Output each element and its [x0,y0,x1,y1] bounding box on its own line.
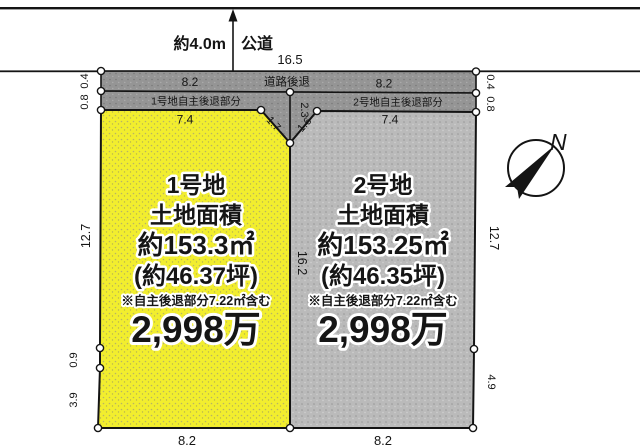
left-edge-dim-04: 0.4 [79,73,91,88]
notch-depth-dim: 2.3 [298,102,310,117]
setback-width-left-dim: 8.2 [182,75,199,89]
center-boundary-dim: 16.2 [295,251,309,275]
plot2-price: 2,998万 [318,309,448,350]
diagram-canvas: 約4.0m 公道 16.5 8.2 道路後退 8.2 1号地自主後退部分 2号地… [0,0,640,447]
plot2-top-width-dim: 7.4 [382,113,399,127]
plot1-area-sqm: 約153.3㎡ [137,230,254,260]
plot1-setback-strip-label: 1号地自主後退部分 [151,95,241,108]
plot1-price: 2,998万 [131,309,261,350]
plot1-name: 1号地 [167,172,226,198]
plot2-right-height-dim: 12.7 [487,226,501,250]
right-edge-dim-08: 0.8 [484,96,496,111]
plot2-setback-strip-label: 2号地自主後退部分 [353,96,443,109]
plot2-bottom-width-dim: 8.2 [374,433,392,447]
road-far-edge-line [0,7,640,9]
plot1-top-width-dim: 7.4 [177,113,194,127]
plot1-area-heading: 土地面積 [150,202,243,228]
compass-north-label: N [550,129,567,155]
road-width-label: 約4.0m [174,34,226,53]
setback-width-right-dim: 8.2 [376,77,393,91]
left-edge-dim-08: 0.8 [79,94,91,109]
plot1-left-height-dim: 12.7 [79,224,93,248]
plot2-name: 2号地 [354,172,413,198]
plot1-setback-note: ※自主後退部分7.22㎡含む [121,293,270,308]
frontage-dim: 16.5 [277,52,302,67]
plot2-area-heading: 土地面積 [337,202,430,228]
plot1-area-tsubo: (約46.37坪) [134,262,258,290]
plot1-left-seg2-dim: 3.9 [68,392,80,407]
plot2-setback-note: ※自主後退部分7.22㎡含む [308,293,457,308]
plot2-area-sqm: 約153.25㎡ [317,230,449,260]
plot1-left-seg1-dim: 0.9 [68,352,80,367]
arrow-up-icon [229,9,238,22]
plot1-bottom-width-dim: 8.2 [178,433,196,447]
road-setback-label: 道路後退 [264,75,310,89]
road-name-label: 公道 [241,34,273,53]
plot2-area-tsubo: (約46.35坪) [321,262,445,290]
compass: N [505,129,567,199]
plot2-right-seg-dim: 4.9 [485,374,497,389]
land-plot-diagram: 約4.0m 公道 16.5 8.2 道路後退 8.2 1号地自主後退部分 2号地… [0,0,640,447]
right-edge-dim-04: 0.4 [484,74,496,89]
